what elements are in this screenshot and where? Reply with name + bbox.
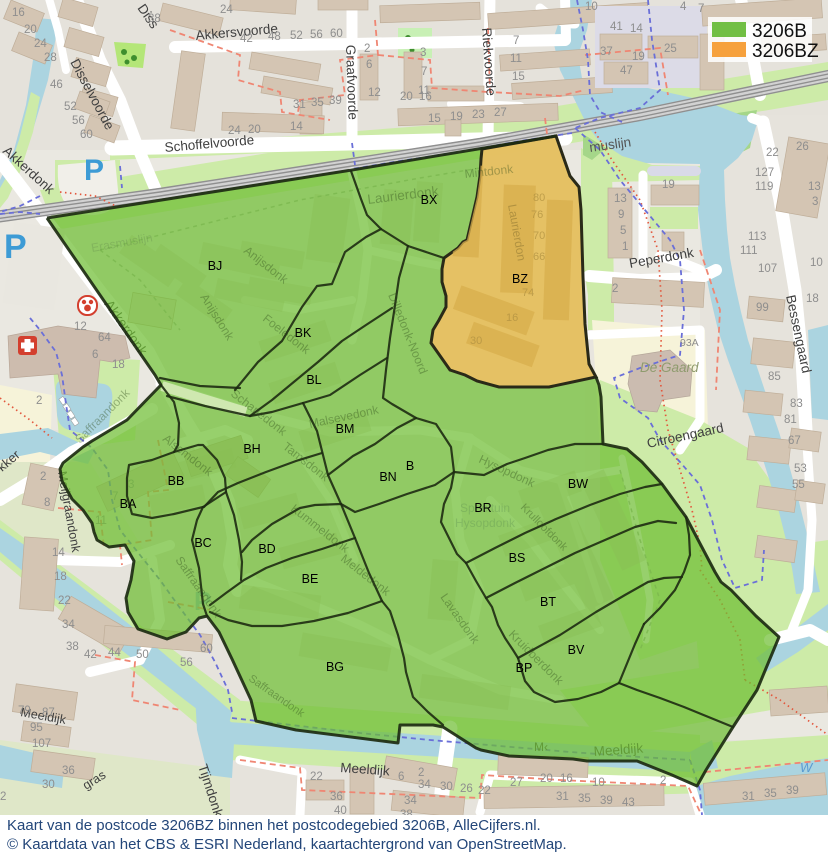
svg-text:50: 50 (136, 649, 149, 661)
svg-text:BX: BX (421, 193, 438, 207)
svg-text:79: 79 (18, 705, 31, 717)
svg-text:35: 35 (764, 788, 777, 800)
svg-text:8: 8 (44, 497, 50, 509)
svg-text:43: 43 (622, 797, 635, 809)
svg-text:93A: 93A (680, 337, 699, 349)
svg-text:56: 56 (310, 29, 323, 41)
svg-text:9: 9 (618, 209, 624, 221)
svg-text:5: 5 (620, 225, 626, 237)
svg-text:3206BZ: 3206BZ (752, 41, 819, 62)
svg-text:60: 60 (80, 129, 93, 141)
svg-text:35: 35 (578, 793, 591, 805)
svg-text:107: 107 (32, 738, 51, 750)
svg-text:74: 74 (522, 287, 534, 299)
svg-text:26: 26 (796, 141, 809, 153)
svg-text:85: 85 (768, 371, 781, 383)
svg-text:W: W (800, 760, 814, 775)
svg-text:30: 30 (470, 335, 482, 347)
svg-text:BC: BC (194, 536, 211, 550)
svg-text:16: 16 (419, 91, 432, 103)
svg-text:22: 22 (478, 785, 491, 797)
svg-text:18: 18 (112, 359, 125, 371)
svg-text:22: 22 (58, 595, 71, 607)
svg-text:26: 26 (460, 783, 473, 795)
svg-text:20: 20 (24, 24, 37, 36)
svg-text:44: 44 (108, 647, 121, 659)
svg-text:12: 12 (74, 321, 87, 333)
svg-text:BA: BA (120, 497, 137, 511)
svg-text:2: 2 (40, 471, 46, 483)
svg-text:35: 35 (311, 97, 324, 109)
svg-text:36: 36 (330, 791, 343, 803)
svg-text:6: 6 (398, 771, 404, 783)
svg-text:42: 42 (240, 33, 253, 45)
svg-text:53: 53 (794, 463, 807, 475)
svg-text:16: 16 (506, 312, 518, 324)
svg-text:28: 28 (44, 52, 57, 64)
svg-text:24: 24 (228, 125, 241, 137)
svg-text:De Gaard: De Gaard (640, 360, 699, 375)
svg-text:41: 41 (610, 21, 623, 33)
svg-text:BK: BK (295, 326, 312, 340)
svg-text:39: 39 (786, 785, 799, 797)
svg-text:BN: BN (379, 470, 396, 484)
svg-text:30: 30 (42, 779, 55, 791)
svg-text:20: 20 (540, 773, 553, 785)
svg-text:18: 18 (806, 293, 819, 305)
svg-text:3206B: 3206B (752, 21, 807, 42)
svg-text:99: 99 (756, 302, 769, 314)
svg-text:18: 18 (54, 571, 67, 583)
svg-text:113: 113 (748, 231, 766, 243)
svg-text:BS: BS (509, 551, 526, 565)
svg-text:7: 7 (698, 3, 704, 15)
svg-text:31: 31 (742, 791, 755, 803)
svg-text:36: 36 (62, 765, 75, 777)
svg-text:7: 7 (513, 35, 519, 47)
svg-text:95: 95 (30, 722, 43, 734)
svg-text:BE: BE (302, 572, 319, 586)
svg-text:14: 14 (52, 547, 65, 559)
svg-text:2: 2 (660, 775, 666, 787)
svg-text:2: 2 (364, 43, 370, 55)
svg-text:BJ: BJ (208, 259, 223, 273)
svg-text:2: 2 (36, 395, 42, 407)
svg-text:2: 2 (612, 283, 618, 295)
svg-text:56: 56 (72, 115, 85, 127)
svg-text:3: 3 (812, 196, 818, 208)
svg-text:67: 67 (788, 435, 801, 447)
svg-text:66: 66 (533, 251, 545, 263)
svg-text:37: 37 (600, 46, 613, 58)
svg-text:25: 25 (664, 43, 677, 55)
svg-text:19: 19 (450, 111, 463, 123)
svg-text:14: 14 (290, 121, 303, 133)
svg-text:20: 20 (400, 91, 413, 103)
svg-text:38: 38 (66, 641, 79, 653)
svg-text:24: 24 (34, 38, 47, 50)
svg-text:4: 4 (680, 1, 687, 13)
svg-text:27: 27 (510, 777, 523, 789)
svg-text:BR: BR (474, 501, 491, 515)
svg-text:BD: BD (258, 542, 275, 556)
svg-text:23: 23 (472, 109, 485, 121)
svg-text:24: 24 (220, 4, 233, 16)
svg-text:12: 12 (368, 87, 381, 99)
svg-text:39: 39 (600, 795, 613, 807)
svg-text:64: 64 (98, 332, 111, 344)
svg-text:BZ: BZ (512, 272, 528, 286)
svg-text:19: 19 (632, 51, 645, 63)
svg-text:52: 52 (64, 101, 77, 113)
svg-text:BT: BT (540, 595, 556, 609)
svg-text:16: 16 (12, 7, 25, 19)
svg-text:22: 22 (310, 771, 323, 783)
svg-text:34: 34 (404, 795, 417, 807)
svg-text:10: 10 (810, 257, 823, 269)
svg-text:52: 52 (290, 30, 303, 42)
svg-text:76: 76 (531, 209, 543, 221)
svg-text:56: 56 (180, 657, 193, 669)
svg-text:BP: BP (516, 661, 533, 675)
svg-text:13: 13 (808, 181, 821, 193)
svg-text:34: 34 (62, 619, 75, 631)
svg-text:55: 55 (792, 479, 805, 491)
svg-text:38: 38 (148, 13, 161, 25)
svg-text:15: 15 (512, 71, 525, 83)
svg-text:14: 14 (630, 23, 643, 35)
svg-text:83: 83 (790, 398, 803, 410)
svg-text:BW: BW (568, 477, 588, 491)
svg-text:107: 107 (758, 263, 777, 275)
svg-text:19: 19 (662, 179, 675, 191)
svg-text:119: 119 (755, 181, 773, 193)
svg-text:BL: BL (306, 373, 321, 387)
svg-text:42: 42 (84, 649, 97, 661)
svg-text:81: 81 (784, 414, 797, 426)
svg-text:BB: BB (168, 474, 185, 488)
svg-text:13: 13 (614, 193, 627, 205)
svg-text:7: 7 (421, 66, 427, 78)
svg-text:48: 48 (268, 31, 281, 43)
svg-text:3: 3 (420, 47, 426, 59)
svg-text:BG: BG (326, 660, 344, 674)
svg-text:11: 11 (510, 53, 522, 65)
svg-text:30: 30 (440, 781, 453, 793)
svg-text:80: 80 (533, 192, 545, 204)
svg-text:P: P (84, 154, 104, 187)
svg-text:16: 16 (560, 773, 573, 785)
svg-text:6: 6 (92, 349, 98, 361)
svg-text:BM: BM (336, 422, 355, 436)
svg-text:127: 127 (755, 167, 774, 179)
svg-text:60: 60 (200, 643, 213, 655)
svg-text:31: 31 (293, 99, 306, 111)
svg-text:B: B (406, 459, 414, 473)
svg-text:27: 27 (494, 107, 507, 119)
svg-text:20: 20 (248, 124, 261, 136)
svg-text:1: 1 (622, 241, 628, 253)
svg-text:34: 34 (418, 779, 431, 791)
svg-text:2: 2 (0, 791, 6, 803)
svg-text:6: 6 (366, 59, 372, 71)
svg-text:Hysopdonk: Hysopdonk (455, 516, 516, 530)
svg-text:31: 31 (556, 791, 569, 803)
svg-text:39: 39 (329, 95, 342, 107)
svg-text:Graafvoorde: Graafvoorde (343, 45, 361, 121)
svg-text:47: 47 (620, 65, 633, 77)
svg-text:BV: BV (568, 643, 585, 657)
svg-text:10: 10 (592, 777, 605, 789)
svg-text:BH: BH (243, 442, 260, 456)
svg-text:15: 15 (428, 113, 441, 125)
svg-text:60: 60 (330, 28, 343, 40)
svg-text:70: 70 (533, 230, 545, 242)
svg-text:46: 46 (50, 79, 63, 91)
svg-text:2: 2 (418, 767, 424, 779)
svg-text:111: 111 (740, 245, 757, 257)
svg-text:P: P (4, 228, 27, 266)
svg-text:87: 87 (42, 707, 55, 719)
svg-text:10: 10 (585, 1, 598, 13)
svg-text:22: 22 (766, 147, 779, 159)
